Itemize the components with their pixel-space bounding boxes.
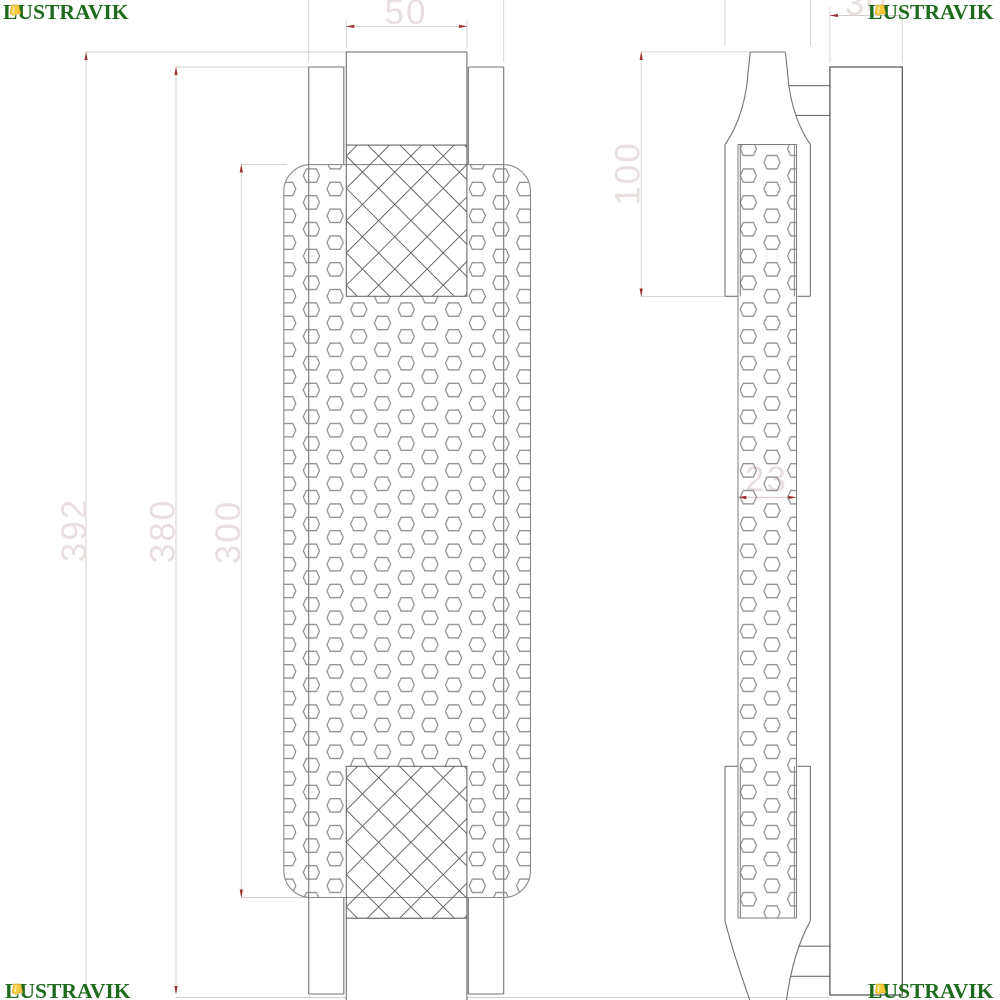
- svg-text:380: 380: [144, 499, 183, 563]
- svg-text:LUSTRAVIK: LUSTRAVIK: [5, 979, 131, 1000]
- svg-text:LUSTRAVIK: LUSTRAVIK: [3, 0, 129, 24]
- svg-text:300: 300: [209, 500, 248, 564]
- svg-text:100: 100: [609, 141, 648, 205]
- svg-text:50: 50: [385, 0, 428, 32]
- svg-text:LUSTRAVIK: LUSTRAVIK: [868, 979, 994, 1000]
- svg-text:392: 392: [55, 498, 94, 562]
- svg-text:LUSTRAVIK: LUSTRAVIK: [868, 0, 994, 24]
